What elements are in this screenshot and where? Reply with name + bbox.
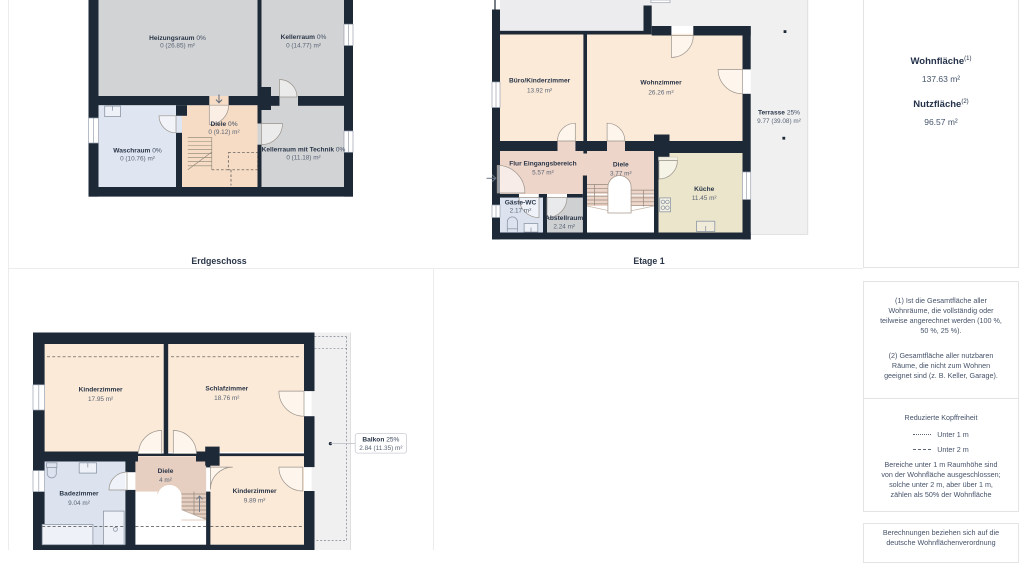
svg-text:11.45 m²: 11.45 m² [692,195,717,202]
svg-text:Küche: Küche [694,186,714,193]
svg-text:18.76 m²: 18.76 m² [214,395,239,402]
svg-text:26.26 m²: 26.26 m² [648,90,673,97]
svg-text:Kellerraum 0%: Kellerraum 0% [281,34,327,41]
svg-text:Abstellraum: Abstellraum [545,215,583,222]
svg-text:Diele 0%: Diele 0% [210,121,237,128]
svg-text:Badezimmer: Badezimmer [59,490,99,497]
svg-text:Terrasse 25%: Terrasse 25% [758,110,800,117]
svg-text:17.95 m²: 17.95 m² [88,396,113,403]
svg-text:0 (9.12) m²: 0 (9.12) m² [208,129,239,136]
svg-text:2.17 m²: 2.17 m² [510,208,532,215]
svg-text:Diele: Diele [613,161,629,168]
svg-text:Diele: Diele [158,468,174,475]
svg-text:9.04 m²: 9.04 m² [68,500,90,507]
svg-text:Heizungsraum 0%: Heizungsraum 0% [149,35,206,42]
svg-text:Flur Eingangsbereich: Flur Eingangsbereich [509,161,576,168]
svg-text:0 (14.77) m²: 0 (14.77) m² [286,42,321,49]
svg-text:2.24 m²: 2.24 m² [553,223,575,230]
svg-text:0 (11.18) m²: 0 (11.18) m² [286,154,320,161]
svg-text:9.77 (39.08) m²: 9.77 (39.08) m² [757,118,801,125]
svg-text:Wohnzimmer: Wohnzimmer [640,80,682,87]
svg-text:13.92 m²: 13.92 m² [527,88,552,95]
svg-text:Kellerraum mit Technik 0%: Kellerraum mit Technik 0% [262,146,346,153]
svg-text:Waschraum 0%: Waschraum 0% [113,148,162,155]
svg-text:4 m²: 4 m² [159,477,172,484]
svg-text:Schlafzimmer: Schlafzimmer [205,385,248,392]
svg-text:3.77 m²: 3.77 m² [610,170,632,177]
svg-text:5.57 m²: 5.57 m² [532,170,554,177]
svg-text:Kinderzimmer: Kinderzimmer [79,386,123,393]
svg-text:2.84 (11.35) m²: 2.84 (11.35) m² [359,445,402,452]
svg-text:9.89 m²: 9.89 m² [244,498,266,505]
svg-text:0 (26.85) m²: 0 (26.85) m² [160,43,195,50]
svg-text:Büro/Kinderzimmer: Büro/Kinderzimmer [509,77,571,84]
svg-text:Kinderzimmer: Kinderzimmer [233,488,277,495]
svg-text:0 (10.76) m²: 0 (10.76) m² [120,155,155,162]
svg-text:Gäste-WC: Gäste-WC [505,199,537,206]
svg-text:Balkon 25%: Balkon 25% [362,437,399,444]
